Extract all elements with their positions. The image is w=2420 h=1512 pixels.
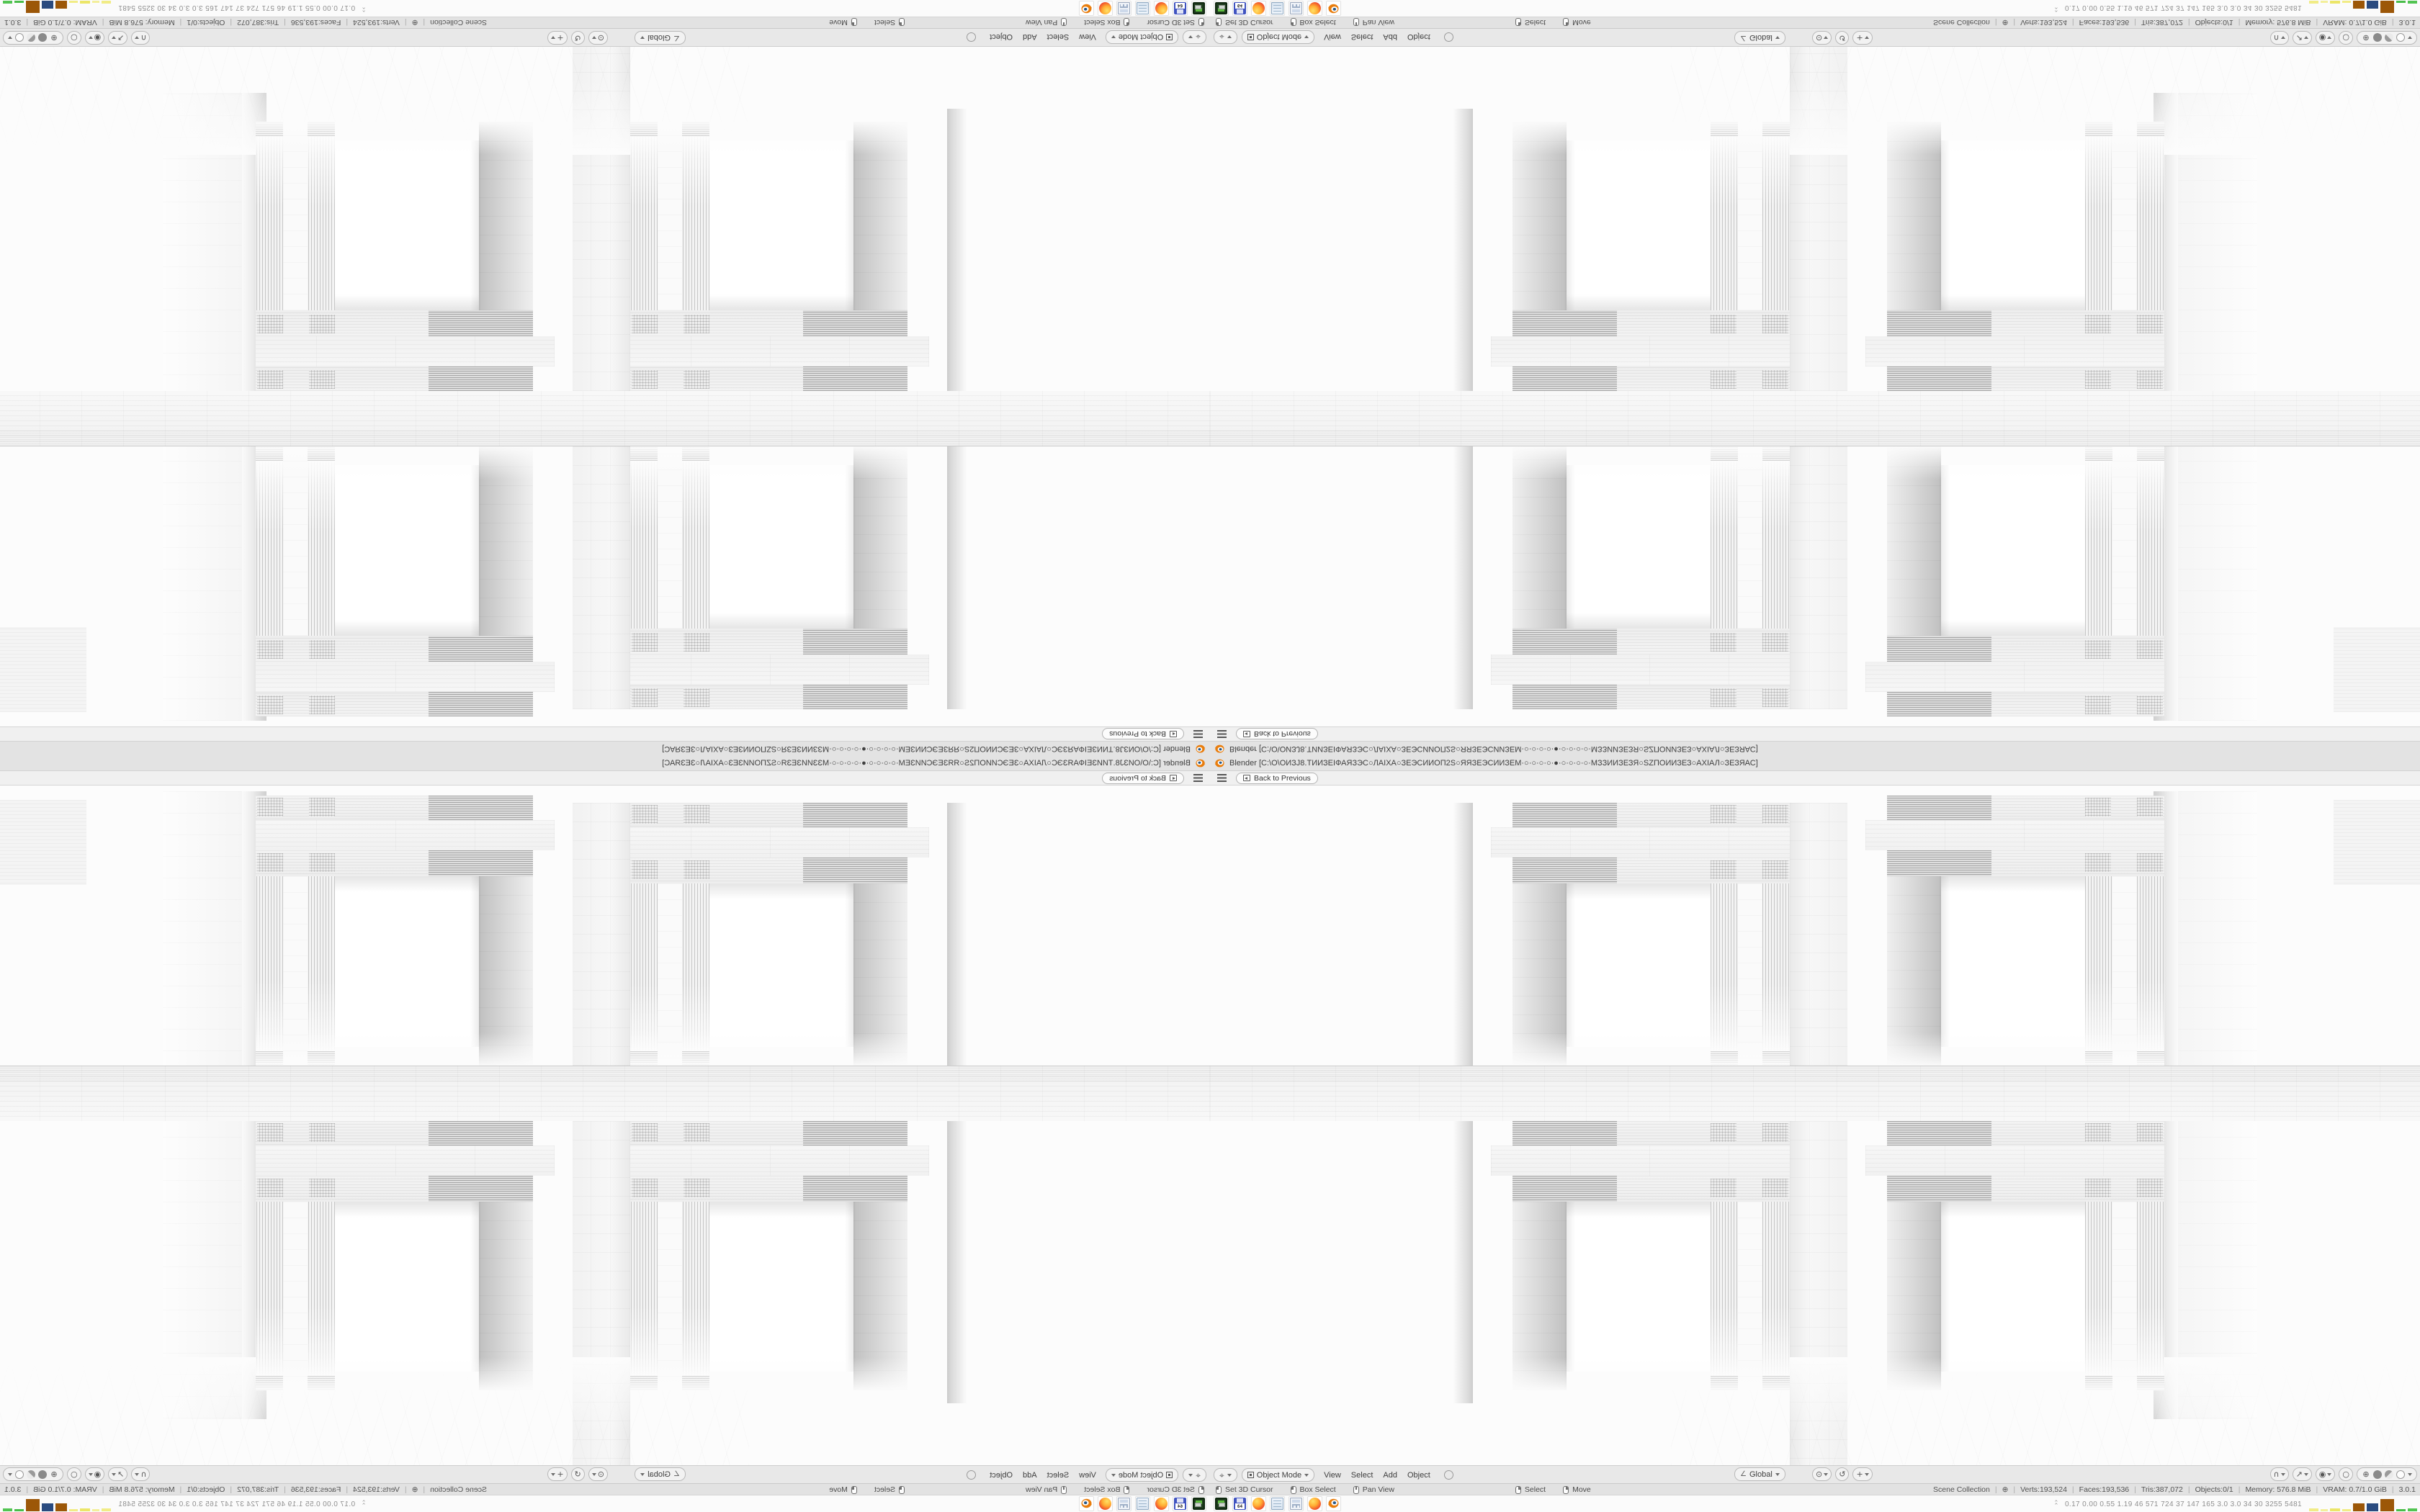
menu-select[interactable]: Select	[1042, 33, 1075, 42]
keymap-hint: Pan View	[1026, 18, 1067, 27]
chevron-up-icon: ^^	[362, 1501, 365, 1507]
transform-orientation-dropdown[interactable]: ∠ Global	[1734, 1467, 1785, 1481]
keymap-hint: Move	[829, 1485, 857, 1494]
snap-magnet-button[interactable]: ∩	[131, 1467, 150, 1481]
perf-bar	[2408, 1508, 2417, 1511]
window-title: Blender [C:\O\ОИЗЈ8.ТИИЗЕІФАЯЗЭС○ЛАІХА○З…	[662, 744, 1191, 753]
snap-toggle-button[interactable]: ↺	[1835, 1467, 1849, 1481]
keymap-hint: Pan View	[1353, 1485, 1394, 1494]
proportional-edit-button[interactable]: ◉	[2316, 31, 2336, 45]
stats-separator: |	[346, 1485, 348, 1494]
keymap-hint: Move	[1563, 18, 1591, 27]
stats-segment: 3.0.1	[2399, 1485, 2416, 1494]
stats-separator: |	[102, 1485, 104, 1494]
mouse-rmb-icon	[1563, 1486, 1569, 1494]
blender-taskbar-button[interactable]	[1079, 1, 1094, 16]
perf-bar	[2367, 1, 2378, 9]
back-to-previous-button[interactable]: Back to Previous	[1102, 729, 1184, 740]
orientation-group: ∠ Global	[635, 1467, 686, 1481]
viewport-3d[interactable]	[1210, 786, 2420, 1465]
viewport-header: ⌖ Object Mode ViewSelectAddObject ∠ Glob…	[1210, 29, 2420, 47]
editor-type-button[interactable]: ⌖	[1214, 1468, 1237, 1482]
facade-edge-fragment	[2334, 627, 2420, 712]
stats-segment: Memory: 576.8 MiB	[109, 1485, 175, 1494]
pivot-point-button[interactable]: ⊙	[1812, 1467, 1832, 1481]
calculator-icon	[1290, 1498, 1302, 1510]
perf-bar	[2396, 1, 2406, 3]
viewport-3d[interactable]	[0, 47, 1210, 726]
annotation-circle-button[interactable]	[967, 32, 976, 42]
mouse-lmb-icon	[1216, 19, 1222, 27]
notepad-icon	[1137, 1498, 1149, 1510]
hint-label: Move	[829, 1485, 848, 1494]
firefox-icon	[1155, 2, 1168, 14]
pivot-point-button[interactable]: ⊙	[1812, 31, 1832, 45]
mode-dropdown[interactable]: Object Mode	[1242, 30, 1314, 44]
facade-bay-bottom-left	[630, 122, 947, 391]
firefox-taskbar-button[interactable]	[1251, 1, 1266, 16]
mouse-lmb-icon	[1198, 19, 1204, 27]
taskbar-apps: 64	[1079, 1, 1206, 16]
stats-separator: |	[1995, 1485, 1997, 1494]
notepad-taskbar-button[interactable]	[1270, 1, 1285, 16]
chevron-down-icon	[2408, 1473, 2412, 1476]
xray-toggle-button[interactable]: ○	[67, 31, 81, 45]
perf-bar	[14, 1509, 24, 1511]
quadrant-top-right: Blender [C:\O\ОИЗЈ8.ТИИЗЕІФАЯЗЭС○ЛАІХА○З…	[1210, 0, 2420, 756]
keymap-hint: Select	[874, 1485, 905, 1494]
orientation-axes-icon: ∠	[673, 34, 680, 42]
calculator-taskbar-button[interactable]	[1116, 1, 1131, 16]
stats-segment: Tris:387,072	[237, 1485, 279, 1494]
perf-bar	[2309, 1, 2318, 4]
stats-segment: Scene Collection	[430, 18, 487, 27]
drive-icon	[1193, 1498, 1205, 1510]
hamburger-menu-icon[interactable]	[1193, 774, 1203, 782]
notepad-taskbar-button[interactable]	[1135, 1, 1150, 16]
proportional-edit-button[interactable]: ◉	[85, 1467, 105, 1481]
firefox-icon	[1155, 1498, 1168, 1510]
firefox-taskbar-button[interactable]	[1251, 1496, 1266, 1511]
hint-label: Set 3D Cursor	[1225, 1485, 1273, 1494]
transform-orientation-dropdown[interactable]: ∠ Global	[635, 1467, 686, 1481]
stats-separator: |	[2013, 18, 2015, 27]
stats-separator: |	[2072, 18, 2074, 27]
annotation-circle-button[interactable]	[1444, 1470, 1453, 1480]
stats-segment: Faces:193,536	[291, 18, 341, 27]
header-right-group: ∩ ↗ ◉ ○ ⊕	[3, 1467, 151, 1481]
drive-icon	[1215, 2, 1227, 14]
calculator-taskbar-button[interactable]	[1289, 1496, 1304, 1511]
stats-separator: |	[2392, 18, 2394, 27]
proportional-edit-button[interactable]: ◉	[85, 31, 105, 45]
keymap-hint: Move	[1563, 1485, 1591, 1494]
window-titlebar: Blender [C:\O\ОИЗЈ8.ТИИЗЕІФАЯЗЭС○ЛАІХА○З…	[0, 741, 1210, 756]
menu-add[interactable]: Add	[1018, 1471, 1042, 1480]
stats-separator: |	[2316, 1485, 2318, 1494]
mode-dropdown[interactable]: Object Mode	[1106, 30, 1178, 44]
header-menus: ViewSelectAddObject	[1319, 33, 1435, 42]
blender-icon	[1080, 1498, 1093, 1510]
perf-bar	[69, 1509, 78, 1511]
chevron-down-icon	[8, 37, 12, 40]
scene-statistics: Scene Collection|⊕|Verts:193,524|Faces:1…	[1933, 1484, 2416, 1495]
floppy-taskbar-button[interactable]: 64	[1232, 1496, 1247, 1511]
annotation-circle-button[interactable]	[1444, 32, 1453, 42]
mouse-rmb-icon	[899, 1486, 905, 1494]
orientation-group: ∠ Global	[1734, 31, 1785, 45]
floppy-icon: 64	[1234, 2, 1246, 14]
blender-logo-icon	[1196, 744, 1206, 754]
hint-label: Box Select	[1084, 1485, 1120, 1494]
stats-separator: |	[180, 18, 182, 27]
stats-separator: |	[26, 18, 28, 27]
shading-wireframe-icon[interactable]: ⊕	[2362, 1470, 2370, 1479]
performance-values: 0.17 0.00 0.55 1.19 46 571 724 37 147 16…	[2065, 4, 2302, 12]
stats-segment: 3.0.1	[4, 18, 21, 27]
back-window-icon	[1243, 731, 1250, 737]
orientation-axes-icon: ∠	[1740, 1470, 1747, 1478]
floppy-taskbar-button[interactable]: 64	[1173, 1496, 1188, 1511]
menu-view[interactable]: View	[1319, 1471, 1346, 1480]
proportional-falloff-button[interactable]: +	[1852, 31, 1872, 45]
facade-slab-band	[1210, 1066, 2420, 1121]
chevron-down-icon	[1111, 1474, 1116, 1477]
facade-bay-bottom-left	[630, 1121, 947, 1390]
mouse-mmb-icon	[1061, 1486, 1067, 1494]
performance-values: 0.17 0.00 0.55 1.19 46 571 724 37 147 16…	[118, 1500, 355, 1508]
proportional-falloff-button[interactable]: +	[547, 1467, 567, 1481]
cursor-tool-button[interactable]: ↗	[108, 31, 127, 45]
facade-bay-top-right	[256, 796, 573, 1066]
hint-label: Select	[1525, 1485, 1546, 1494]
hint-label: Set 3D Cursor	[1147, 18, 1195, 27]
object-mode-icon	[1166, 34, 1173, 40]
firefox-taskbar-button[interactable]	[1307, 1496, 1322, 1511]
shading-solid-icon[interactable]	[38, 34, 47, 42]
shading-solid-icon[interactable]	[38, 1470, 47, 1479]
menu-select[interactable]: Select	[1346, 33, 1379, 42]
chevron-up-icon: ^^	[362, 5, 365, 11]
shading-solid-icon[interactable]	[2373, 1470, 2382, 1479]
keymap-hint: Select	[874, 18, 905, 27]
quadrant-top-left: Blender [C:\O\ОИЗЈ8.ТИИЗЕІФАЯЗЭС○ЛАІХА○З…	[0, 0, 1210, 756]
scene-statistics: Scene Collection|⊕|Verts:193,524|Faces:1…	[4, 1484, 487, 1495]
stats-separator: |	[180, 1485, 182, 1494]
mouse-mmb-icon	[1353, 1486, 1359, 1494]
stats-separator: |	[423, 1485, 425, 1494]
screen-canvas: Blender [C:\O\ОИЗЈ8.ТИИЗЕІФАЯЗЭС○ЛАІХА○З…	[0, 0, 2420, 1512]
hint-label: Pan View	[1363, 1485, 1394, 1494]
header-right-group: ∩ ↗ ◉ ○ ⊕	[2270, 1467, 2418, 1481]
perf-bar	[2321, 1, 2328, 3]
menu-view[interactable]: View	[1074, 33, 1101, 42]
blender-taskbar-button[interactable]	[1326, 1, 1341, 16]
topbar: Back to Previous	[1210, 726, 2420, 741]
shading-mode-group: ⊕	[2357, 31, 2417, 45]
stats-segment: Objects:0/1	[2195, 1485, 2233, 1494]
stats-separator: |	[230, 18, 232, 27]
chevron-down-icon	[1775, 1473, 1780, 1476]
menu-add[interactable]: Add	[1378, 1471, 1402, 1480]
shading-rendered-icon[interactable]	[15, 34, 24, 42]
stats-segment: Scene Collection	[430, 1485, 487, 1494]
pivot-snap-group: ⊙ ↺ +	[547, 31, 608, 45]
shading-rendered-icon[interactable]	[2396, 1470, 2405, 1479]
quadrant-bottom-left: Blender [C:\O\ОИЗЈ8.ТИИЗЕІФАЯЗЭС○ЛАІХА○З…	[0, 756, 1210, 1512]
perf-bar	[55, 1, 67, 9]
stats-segment: Memory: 576.8 MiB	[2245, 18, 2311, 27]
perf-bar	[102, 1508, 111, 1511]
floppy-label: 64	[1235, 1503, 1245, 1509]
xray-toggle-button[interactable]: ○	[67, 1467, 81, 1481]
object-mode-icon	[1247, 34, 1254, 40]
firefox-icon	[1309, 2, 1321, 14]
floppy-icon: 64	[1234, 1498, 1246, 1510]
firefox-icon	[1099, 1498, 1111, 1510]
taskbar-apps: 64	[1214, 1496, 1341, 1511]
shading-wireframe-icon[interactable]: ⊕	[2362, 34, 2370, 42]
proportional-edit-button[interactable]: ◉	[2316, 1467, 2336, 1481]
perf-bar	[80, 1, 90, 4]
cursor-tool-button[interactable]: ↗	[2293, 31, 2312, 45]
menu-object[interactable]: Object	[985, 1471, 1018, 1480]
performance-values: 0.17 0.00 0.55 1.19 46 571 724 37 147 16…	[118, 4, 355, 12]
mouse-lmb-icon	[1216, 1486, 1222, 1494]
back-window-icon	[1170, 775, 1177, 781]
notepad-taskbar-button[interactable]	[1270, 1496, 1285, 1511]
viewport-3d[interactable]	[1210, 47, 2420, 726]
snap-toggle-button[interactable]: ↺	[1835, 31, 1849, 45]
header-left-group: ⌖ Object Mode ViewSelectAddObject	[967, 1466, 1206, 1484]
viewport-header: ⌖ Object Mode ViewSelectAddObject ∠ Glob…	[0, 1465, 1210, 1483]
scene-statistics: Scene Collection|⊕|Verts:193,524|Faces:1…	[4, 17, 487, 28]
stats-segment: Verts:193,524	[353, 18, 400, 27]
header-left-group: ⌖ Object Mode ViewSelectAddObject	[967, 28, 1206, 46]
viewport-editor-icon: ⌖	[1196, 33, 1201, 42]
stats-segment: VRAM: 0.7/1.0 GiB	[2323, 1485, 2387, 1494]
stats-segment: Memory: 576.8 MiB	[2245, 1485, 2311, 1494]
window-title: Blender [C:\O\ОИЗЈ8.ТИИЗЕІФАЯЗЭС○ЛАІХА○З…	[662, 759, 1191, 768]
snap-magnet-button[interactable]: ∩	[131, 31, 150, 45]
shading-rendered-icon[interactable]	[2396, 34, 2405, 42]
calculator-icon	[1290, 2, 1302, 14]
stats-separator: |	[2316, 18, 2318, 27]
firefox-taskbar-button[interactable]	[1154, 1496, 1169, 1511]
hint-label: Pan View	[1026, 18, 1057, 27]
drive-taskbar-button[interactable]	[1191, 1496, 1206, 1511]
floppy-taskbar-button[interactable]: 64	[1232, 1, 1247, 16]
mode-label: Object Mode	[1257, 1471, 1301, 1480]
pivot-snap-group: ⊙ ↺ +	[1812, 31, 1873, 45]
blender-logo-icon	[1196, 758, 1206, 768]
stats-separator: |	[2238, 1485, 2241, 1494]
snap-magnet-button[interactable]: ∩	[2270, 1467, 2289, 1481]
blender-taskbar-button[interactable]	[1326, 1496, 1341, 1511]
chevron-down-icon	[640, 1473, 645, 1476]
xray-toggle-button[interactable]: ○	[2339, 31, 2353, 45]
drive-taskbar-button[interactable]	[1214, 1, 1229, 16]
chevron-down-icon	[1304, 1474, 1309, 1477]
menu-object[interactable]: Object	[985, 33, 1018, 42]
perf-bar	[80, 1508, 90, 1511]
keymap-hint: Set 3D Cursor	[1147, 18, 1204, 27]
blender-taskbar-button[interactable]	[1079, 1496, 1094, 1511]
facade-edge-fragment	[0, 627, 86, 712]
snap-toggle-button[interactable]: ↺	[571, 1467, 585, 1481]
shading-material-icon[interactable]	[2385, 1470, 2393, 1479]
floppy-taskbar-button[interactable]: 64	[1173, 1, 1188, 16]
calculator-taskbar-button[interactable]	[1116, 1496, 1131, 1511]
perf-bar	[92, 1509, 99, 1511]
header-right-group: ∩ ↗ ◉ ○ ⊕	[3, 31, 151, 45]
hint-label: Select	[874, 18, 895, 27]
menu-view[interactable]: View	[1319, 33, 1346, 42]
editor-type-button[interactable]: ⌖	[1183, 1468, 1206, 1482]
firefox-taskbar-button[interactable]	[1098, 1, 1113, 16]
stats-segment: Faces:193,536	[2079, 1485, 2129, 1494]
viewport-editor-icon: ⌖	[1196, 1471, 1201, 1480]
stats-separator: |	[346, 18, 348, 27]
menu-select[interactable]: Select	[1346, 1471, 1379, 1480]
snap-magnet-button[interactable]: ∩	[2270, 31, 2289, 45]
perf-bar	[2330, 1508, 2340, 1511]
performance-bar-chart	[2309, 1, 2417, 14]
stats-separator: |	[102, 18, 104, 27]
mode-label: Object Mode	[1257, 33, 1301, 42]
stats-segment: Objects:0/1	[187, 1485, 225, 1494]
calculator-icon	[1118, 2, 1130, 14]
stats-segment: Objects:0/1	[2195, 18, 2233, 27]
menu-object[interactable]: Object	[1402, 1471, 1435, 1480]
pivot-point-button[interactable]: ⊙	[588, 31, 608, 45]
transform-orientation-dropdown[interactable]: ∠ Global	[1734, 31, 1785, 45]
drive-taskbar-button[interactable]	[1214, 1496, 1229, 1511]
firefox-taskbar-button[interactable]	[1307, 1, 1322, 16]
shading-wireframe-icon[interactable]: ⊕	[50, 1470, 58, 1479]
performance-values: 0.17 0.00 0.55 1.19 46 571 724 37 147 16…	[2065, 1500, 2302, 1508]
window-title: Blender [C:\O\ОИЗЈ8.ТИИЗЕІФАЯЗЭС○ЛАІХА○З…	[1229, 759, 1758, 768]
hint-label: Move	[1572, 1485, 1591, 1494]
facade-bay-top-right	[1847, 796, 2164, 1066]
chevron-down-icon	[1188, 36, 1193, 39]
shading-rendered-icon[interactable]	[15, 1470, 24, 1479]
mouse-lmb-icon	[1291, 19, 1296, 27]
viewport-editor-icon: ⌖	[1219, 1471, 1224, 1480]
perf-bar	[69, 1, 78, 3]
status-bar: Set 3D CursorBox SelectPan ViewSelectMov…	[1210, 17, 2420, 29]
shading-material-icon[interactable]	[2385, 34, 2393, 42]
perf-bar	[2353, 1, 2365, 9]
hint-label: Set 3D Cursor	[1147, 1485, 1195, 1494]
hamburger-menu-icon[interactable]	[1193, 730, 1203, 738]
calculator-taskbar-button[interactable]	[1289, 1, 1304, 16]
notepad-icon	[1271, 1498, 1283, 1510]
blender-window: Blender [C:\O\ОИЗЈ8.ТИИЗЕІФАЯЗЭС○ЛАІХА○З…	[1210, 756, 2420, 1512]
back-to-previous-button[interactable]: Back to Previous	[1236, 729, 1318, 740]
performance-overlay: ^^ 0.17 0.00 0.55 1.19 46 571 724 37 147…	[2055, 1497, 2417, 1511]
chevron-down-icon	[1188, 1474, 1193, 1477]
xray-toggle-button[interactable]: ○	[2339, 1467, 2353, 1481]
hamburger-menu-icon[interactable]	[1217, 730, 1227, 738]
stats-separator: |	[405, 1485, 407, 1494]
firefox-taskbar-button[interactable]	[1098, 1496, 1113, 1511]
proportional-falloff-button[interactable]: +	[547, 31, 567, 45]
facade-bay-bottom-left	[1473, 1121, 1790, 1390]
viewport-3d[interactable]	[0, 786, 1210, 1465]
mouse-lmb-icon	[1124, 19, 1129, 27]
taskbar-apps: 64	[1079, 1496, 1206, 1511]
pivot-snap-group: ⊙ ↺ +	[547, 1467, 608, 1481]
topbar: Back to Previous	[0, 726, 1210, 741]
stats-separator: |	[2134, 1485, 2136, 1494]
annotation-circle-button[interactable]	[967, 1470, 976, 1480]
hamburger-menu-icon[interactable]	[1217, 774, 1227, 782]
mouse-rmb-icon	[1563, 19, 1569, 27]
shading-material-icon[interactable]	[27, 34, 35, 42]
perf-bar	[55, 1503, 67, 1511]
keymap-hint: Pan View	[1026, 1485, 1067, 1494]
mode-dropdown[interactable]: Object Mode	[1106, 1468, 1178, 1482]
shading-solid-icon[interactable]	[2373, 34, 2382, 42]
mode-dropdown[interactable]: Object Mode	[1242, 1468, 1314, 1482]
cursor-tool-button[interactable]: ↗	[108, 1467, 127, 1481]
stats-separator: |	[284, 1485, 286, 1494]
perf-bar	[2408, 1, 2417, 4]
stats-separator: |	[405, 18, 407, 27]
mouse-rmb-icon	[899, 19, 905, 27]
proportional-falloff-button[interactable]: +	[1852, 1467, 1872, 1481]
stats-segment: VRAM: 0.7/1.0 GiB	[2323, 18, 2387, 27]
menu-select[interactable]: Select	[1042, 1471, 1075, 1480]
stats-segment: Scene Collection	[1933, 1485, 1990, 1494]
back-to-previous-button[interactable]: Back to Previous	[1236, 773, 1318, 784]
facade-edge-fragment	[0, 800, 86, 885]
firefox-taskbar-button[interactable]	[1154, 1, 1169, 16]
pivot-point-button[interactable]: ⊙	[588, 1467, 608, 1481]
stats-separator: |	[2238, 18, 2241, 27]
snap-toggle-button[interactable]: ↺	[571, 31, 585, 45]
transform-orientation-dropdown[interactable]: ∠ Global	[635, 31, 686, 45]
firefox-icon	[1099, 2, 1111, 14]
taskbar: 64 ^^ 0.17 0.00 0.55 1.19 46 571 724 37 …	[1210, 1495, 2420, 1512]
cursor-tool-button[interactable]: ↗	[2293, 1467, 2312, 1481]
stats-segment: ⊕	[412, 18, 418, 27]
menu-view[interactable]: View	[1074, 1471, 1101, 1480]
header-right-group: ∩ ↗ ◉ ○ ⊕	[2270, 31, 2418, 45]
editor-type-button[interactable]: ⌖	[1183, 30, 1206, 44]
header-menus: ViewSelectAddObject	[985, 1471, 1101, 1480]
menu-add[interactable]: Add	[1378, 33, 1402, 42]
menu-add[interactable]: Add	[1018, 33, 1042, 42]
perf-bar	[2380, 1499, 2394, 1511]
facade-slab-band	[0, 1066, 1210, 1121]
mouse-rmb-icon	[1515, 19, 1521, 27]
shading-wireframe-icon[interactable]: ⊕	[50, 34, 58, 42]
keymap-hint: Box Select	[1084, 18, 1129, 27]
menu-object[interactable]: Object	[1402, 33, 1435, 42]
notepad-taskbar-button[interactable]	[1135, 1496, 1150, 1511]
chevron-down-icon	[1227, 1474, 1232, 1477]
stats-segment: ⊕	[2002, 18, 2009, 27]
back-to-previous-button[interactable]: Back to Previous	[1102, 773, 1184, 784]
keymap-hint: Pan View	[1353, 18, 1394, 27]
performance-overlay: ^^ 0.17 0.00 0.55 1.19 46 571 724 37 147…	[3, 1, 365, 15]
editor-type-button[interactable]: ⌖	[1214, 30, 1237, 44]
drive-taskbar-button[interactable]	[1191, 1, 1206, 16]
blender-icon	[1327, 2, 1340, 14]
shading-material-icon[interactable]	[27, 1470, 35, 1479]
